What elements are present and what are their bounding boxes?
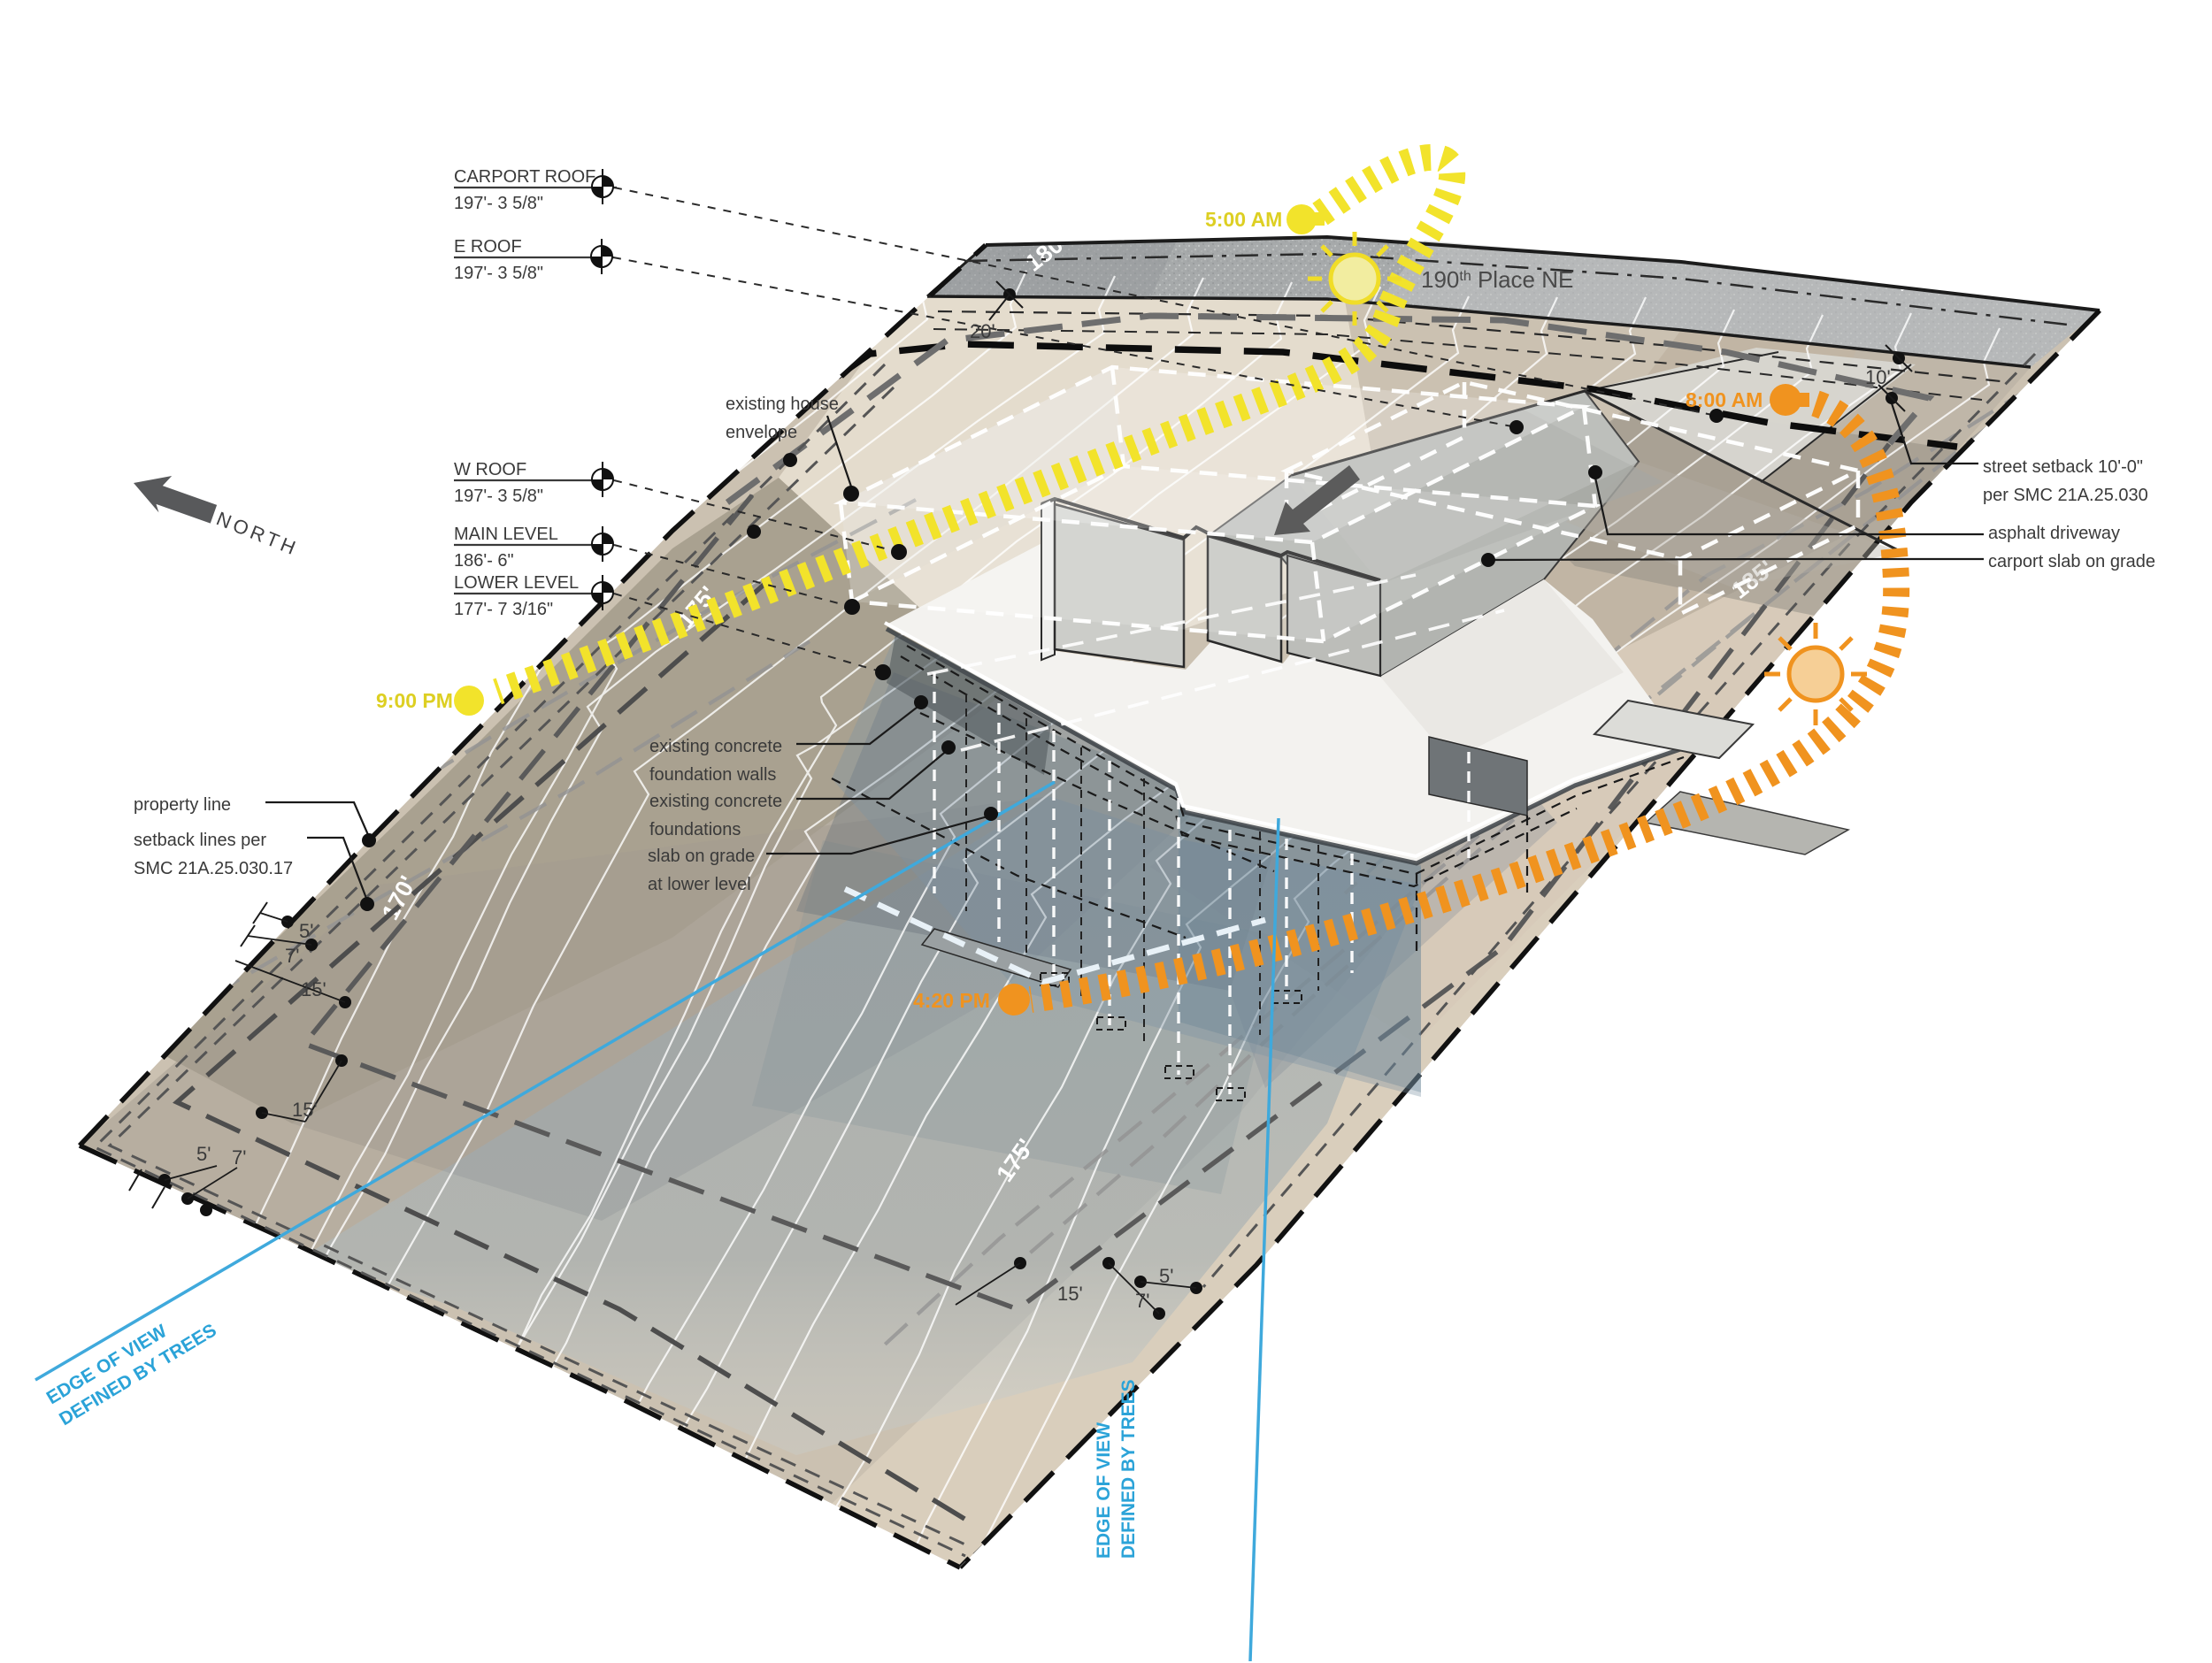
svg-text:SMC 21A.25.030.17: SMC 21A.25.030.17 [134,859,293,878]
svg-text:9:00 PM: 9:00 PM [376,689,453,712]
svg-text:DEFINED BY TREES: DEFINED BY TREES [1118,1379,1139,1559]
svg-text:7': 7' [1135,1290,1149,1312]
svg-text:per SMC 21A.25.030: per SMC 21A.25.030 [1983,486,2148,505]
svg-text:E ROOF: E ROOF [454,237,522,257]
svg-text:at lower level: at lower level [648,875,751,894]
svg-text:15': 15' [292,1099,318,1121]
svg-text:177'- 7 3/16": 177'- 7 3/16" [454,600,553,619]
svg-text:7': 7' [232,1146,246,1169]
svg-text:7': 7' [285,945,299,967]
svg-text:190th Place NE: 190th Place NE [1421,266,1573,293]
svg-text:197'- 3 5/8": 197'- 3 5/8" [454,194,543,213]
svg-text:5': 5' [1159,1265,1173,1287]
svg-text:MAIN LEVEL: MAIN LEVEL [454,525,558,544]
svg-text:4:20 PM: 4:20 PM [913,989,990,1012]
svg-text:5': 5' [196,1143,211,1165]
svg-text:15': 15' [1057,1283,1083,1305]
svg-text:asphalt driveway: asphalt driveway [1988,524,2120,543]
svg-text:setback lines per: setback lines per [134,831,266,850]
svg-text:slab on grade: slab on grade [648,847,755,866]
svg-text:foundation walls: foundation walls [649,765,776,785]
svg-text:197'- 3 5/8": 197'- 3 5/8" [454,487,543,506]
svg-text:5:00 AM: 5:00 AM [1205,208,1282,231]
svg-text:5': 5' [299,920,313,942]
svg-text:existing concrete: existing concrete [649,792,782,811]
svg-text:street setback 10'-0": street setback 10'-0" [1983,457,2143,477]
svg-text:carport slab on grade: carport slab on grade [1988,552,2155,571]
svg-text:186'- 6": 186'- 6" [454,551,514,571]
svg-text:15': 15' [301,978,326,1000]
svg-text:10': 10' [1865,366,1891,388]
svg-text:197'- 3 5/8": 197'- 3 5/8" [454,264,543,283]
svg-text:foundations: foundations [649,820,741,839]
svg-text:W ROOF: W ROOF [454,460,526,479]
svg-text:EDGE OF VIEW: EDGE OF VIEW [1094,1422,1114,1559]
svg-text:LOWER LEVEL: LOWER LEVEL [454,573,579,593]
svg-text:20': 20' [970,320,995,342]
svg-text:envelope: envelope [726,423,797,442]
svg-text:existing house: existing house [726,395,839,414]
svg-text:8:00 AM: 8:00 AM [1686,388,1763,411]
svg-text:property line: property line [134,795,231,815]
svg-text:CARPORT ROOF: CARPORT ROOF [454,167,595,187]
svg-text:existing concrete: existing concrete [649,737,782,756]
